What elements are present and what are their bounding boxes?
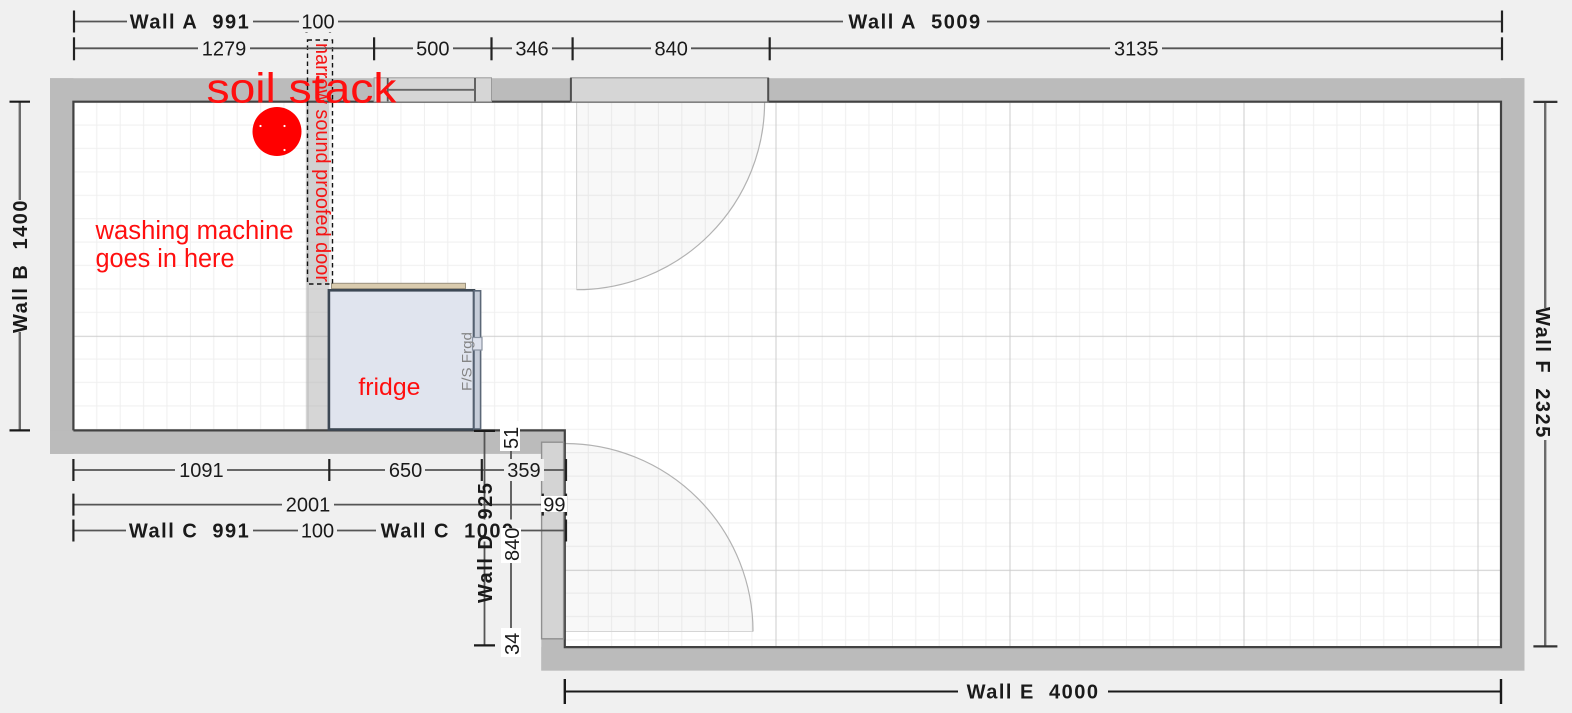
svg-text:840: 840 xyxy=(655,38,688,60)
svg-text:Wall C 991: Wall C 991 xyxy=(129,521,250,543)
svg-text:Wall A 991: Wall A 991 xyxy=(130,12,251,34)
svg-text:fridge: fridge xyxy=(358,374,420,401)
svg-text:goes in here: goes in here xyxy=(96,245,235,273)
svg-text:soil stack: soil stack xyxy=(207,65,398,112)
svg-text:1091: 1091 xyxy=(179,460,224,482)
svg-text:Wall A 5009: Wall A 5009 xyxy=(848,12,981,34)
svg-text:Wall F 2325: Wall F 2325 xyxy=(1531,307,1553,439)
svg-text:500: 500 xyxy=(416,38,449,60)
svg-text:840: 840 xyxy=(502,528,524,561)
svg-text:34: 34 xyxy=(502,633,524,655)
svg-text:51: 51 xyxy=(501,427,523,449)
svg-text:Wall E 4000: Wall E 4000 xyxy=(967,682,1100,704)
svg-text:650: 650 xyxy=(389,460,422,482)
svg-text:F/S Frgd: F/S Frgd xyxy=(460,332,475,391)
svg-text:99: 99 xyxy=(543,495,565,517)
svg-text:Wall D 925: Wall D 925 xyxy=(475,482,497,603)
svg-text:2001: 2001 xyxy=(286,495,331,517)
svg-text:100: 100 xyxy=(301,12,334,34)
svg-text:washing machine: washing machine xyxy=(94,217,293,245)
svg-text:359: 359 xyxy=(507,460,540,482)
svg-text:100: 100 xyxy=(301,521,334,543)
svg-text:1279: 1279 xyxy=(202,38,247,60)
svg-text:346: 346 xyxy=(515,38,548,60)
svg-text:Wall B 1400: Wall B 1400 xyxy=(10,199,32,333)
svg-text:3135: 3135 xyxy=(1114,38,1159,60)
